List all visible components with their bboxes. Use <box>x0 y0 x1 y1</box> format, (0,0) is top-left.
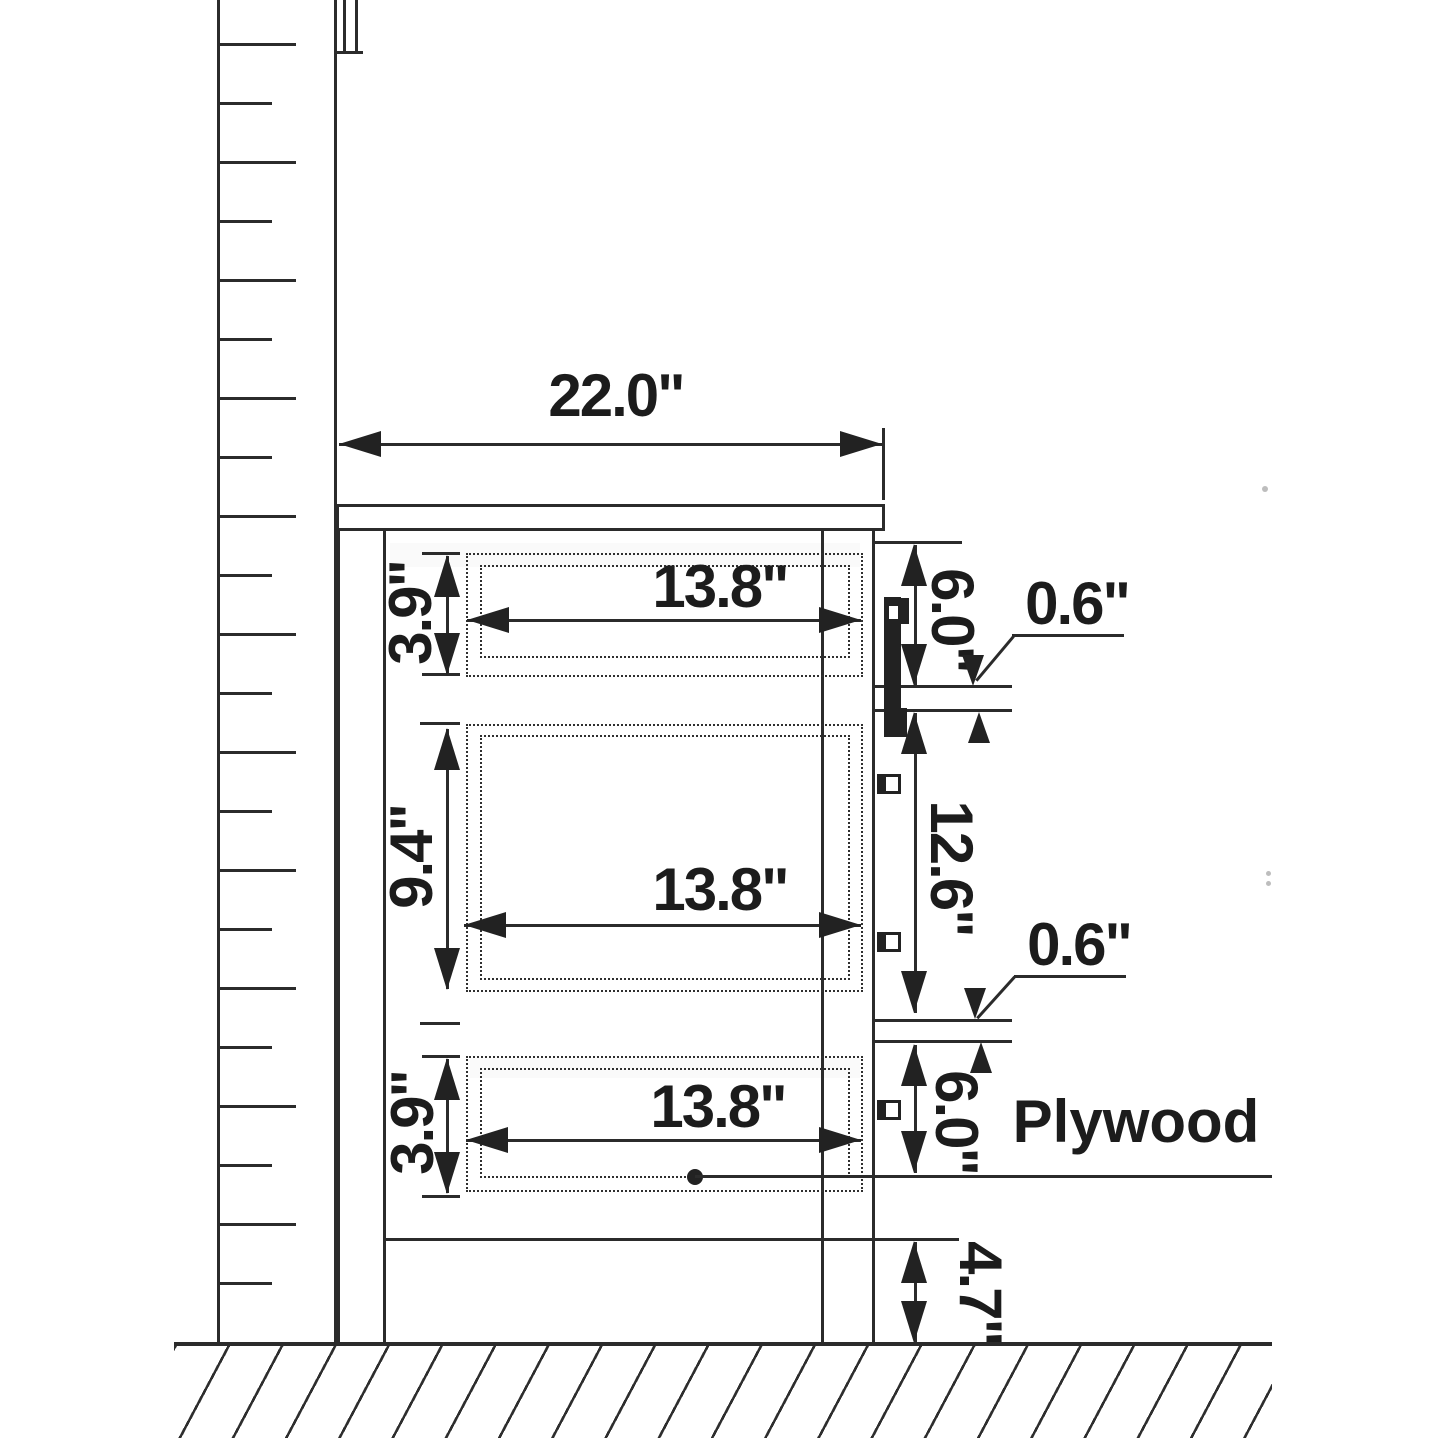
overall-depth-label: 22.0" <box>548 366 683 426</box>
cabinet-back-outer-line <box>337 530 340 1345</box>
wall-tick <box>220 810 272 813</box>
drawer-bottom-width-arrow-left-icon <box>466 1127 508 1153</box>
middle-section-dim-line <box>914 713 917 1013</box>
drawer-slide-notch <box>889 606 898 619</box>
wall-tick <box>220 338 272 341</box>
upper-shelf-thickness-label: 0.6" <box>1025 574 1129 634</box>
scan-artifact-dot <box>1262 486 1268 492</box>
wall-tick <box>220 1282 272 1285</box>
mirror-edge-outer-line <box>343 0 346 53</box>
lower-shelf-arrow-up-icon <box>970 1042 992 1073</box>
bottom-section-label: 6.0" <box>926 1070 986 1174</box>
upper-shelf-arrow-down-icon <box>962 655 984 686</box>
wall-tick <box>220 1046 272 1049</box>
wall-tick <box>220 102 272 105</box>
toe-kick-label: 4.7" <box>950 1241 1010 1345</box>
wall-tick <box>220 515 296 518</box>
wall-left-line <box>217 0 220 1345</box>
wall-tick <box>220 633 296 636</box>
lower-shelf-thickness-label: 0.6" <box>1027 915 1131 975</box>
drawer-slide-clip <box>877 774 901 794</box>
wall-tick <box>220 1223 296 1226</box>
plywood-label: Plywood <box>1013 1092 1260 1152</box>
countertop <box>336 504 885 531</box>
drawer-middle-height-arrow-down-icon <box>434 948 460 990</box>
middle-section-arrow-down-icon <box>901 971 927 1013</box>
overall-depth-extension-line <box>882 428 885 500</box>
wall-tick <box>220 220 272 223</box>
upper-shelf-leader-underline <box>1012 634 1124 637</box>
toe-kick-arrow-down-icon <box>901 1301 927 1343</box>
drawer-middle-width-dim-line <box>464 924 861 927</box>
lower-shelf-top-line <box>874 1019 1012 1022</box>
toe-kick-arrow-up-icon <box>901 1241 927 1283</box>
wall-tick <box>220 1105 296 1108</box>
mirror-bottom-cap-line <box>334 51 363 54</box>
drawer-bottom-height-label: 3.9" <box>383 1071 443 1175</box>
drawer-bottom-height-tick-bottom <box>422 1195 460 1198</box>
drawer-slide-clip <box>877 1100 901 1120</box>
scan-artifact-dot <box>1266 871 1271 876</box>
wall-tick <box>220 161 296 164</box>
drawer-top-height-label: 3.9" <box>381 561 441 665</box>
overall-depth-arrow-right-icon <box>840 431 882 457</box>
drawer-top-width-dim-line <box>467 619 861 622</box>
drawer-top-width-label: 13.8" <box>652 557 787 617</box>
wall-tick <box>220 869 296 872</box>
drawer-slide-clip <box>877 932 901 952</box>
drawer-bottom-width-dim-line <box>466 1139 861 1142</box>
drawer-bottom-width-arrow-right-icon <box>819 1127 861 1153</box>
technical-drawing-canvas: 22.0" 3.9" 9.4" 3.9" 13.8" 13.8" <box>0 0 1445 1445</box>
scan-artifact-dot <box>1266 881 1271 886</box>
drawer-top-width-arrow-right-icon <box>819 607 861 633</box>
mirror-edge-inner-line <box>355 0 358 53</box>
drawer-middle-height-arrow-up-icon <box>434 728 460 770</box>
cabinet-bottom-rail-line <box>385 1238 959 1241</box>
floor-hatching <box>174 1346 1272 1438</box>
cabinet-front-outer-line <box>872 530 875 1345</box>
drawer-middle-width-arrow-left-icon <box>464 912 506 938</box>
wall-tick <box>220 279 296 282</box>
wall-tick <box>220 692 272 695</box>
drawer-middle-height-tick-bottom <box>420 1022 460 1025</box>
wall-tick <box>220 574 272 577</box>
drawer-middle-width-label: 13.8" <box>652 860 787 920</box>
drawer-top-width-arrow-left-icon <box>467 607 509 633</box>
wall-tick <box>220 1164 272 1167</box>
drawer-middle-height-tick-top <box>420 722 460 725</box>
lower-shelf-leader-underline <box>1014 975 1126 978</box>
wall-tick <box>220 456 272 459</box>
overall-depth-arrow-left-icon <box>339 431 381 457</box>
overall-depth-dim-line <box>339 443 882 446</box>
wall-tick <box>220 751 296 754</box>
wall-tick <box>220 928 272 931</box>
wall-tick <box>220 397 296 400</box>
wall-tick <box>220 987 296 990</box>
plywood-leader-line <box>695 1175 1272 1178</box>
drawer-middle-height-label: 9.4" <box>382 805 442 909</box>
lower-shelf-arrow-down-icon <box>964 988 986 1019</box>
drawer-bottom-width-label: 13.8" <box>650 1077 785 1137</box>
drawer-slide-bottom-bracket <box>884 708 907 737</box>
drawer-middle-width-arrow-right-icon <box>819 912 861 938</box>
upper-shelf-arrow-up-icon <box>968 712 990 743</box>
wall-tick <box>220 43 296 46</box>
middle-section-label: 12.6" <box>921 800 981 935</box>
